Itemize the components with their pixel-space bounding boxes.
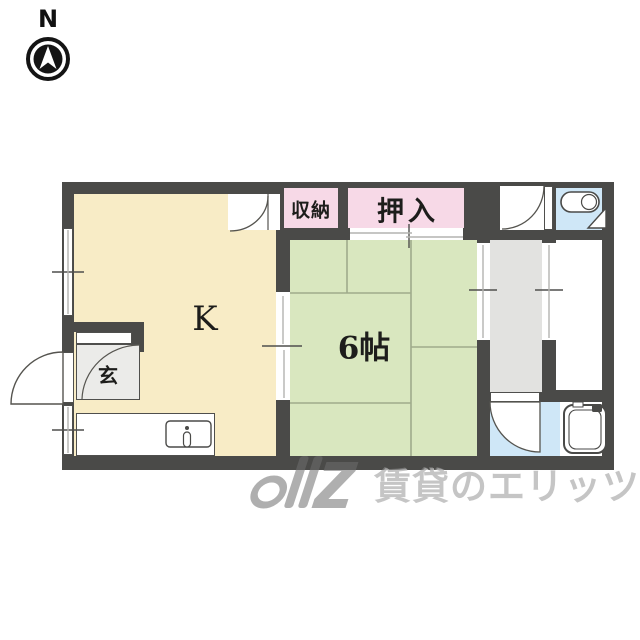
label-entrance: 玄 <box>98 360 118 389</box>
label-closet: 押入 <box>377 190 439 229</box>
opening-tick-marks <box>52 224 563 430</box>
label-tatami: 6帖 <box>338 323 391 368</box>
sliding-door-seams <box>68 230 549 453</box>
entrance-door-swing-arc <box>11 352 63 404</box>
kitchen-sink-icon <box>166 421 211 447</box>
label-kitchen: K <box>192 299 217 339</box>
bathtub-icon <box>564 402 606 453</box>
vestibule-door-swing-arc <box>502 186 544 229</box>
label-storage: 収納 <box>291 196 331 223</box>
toilet-icon <box>561 192 606 228</box>
plan-overlay <box>0 0 640 640</box>
kitchen-top-door-swing-arc <box>230 194 268 231</box>
floor-plan-page: { "compass": { "label": "N" }, "plan": {… <box>0 0 640 640</box>
bathroom-door-swing-arc <box>490 402 540 452</box>
